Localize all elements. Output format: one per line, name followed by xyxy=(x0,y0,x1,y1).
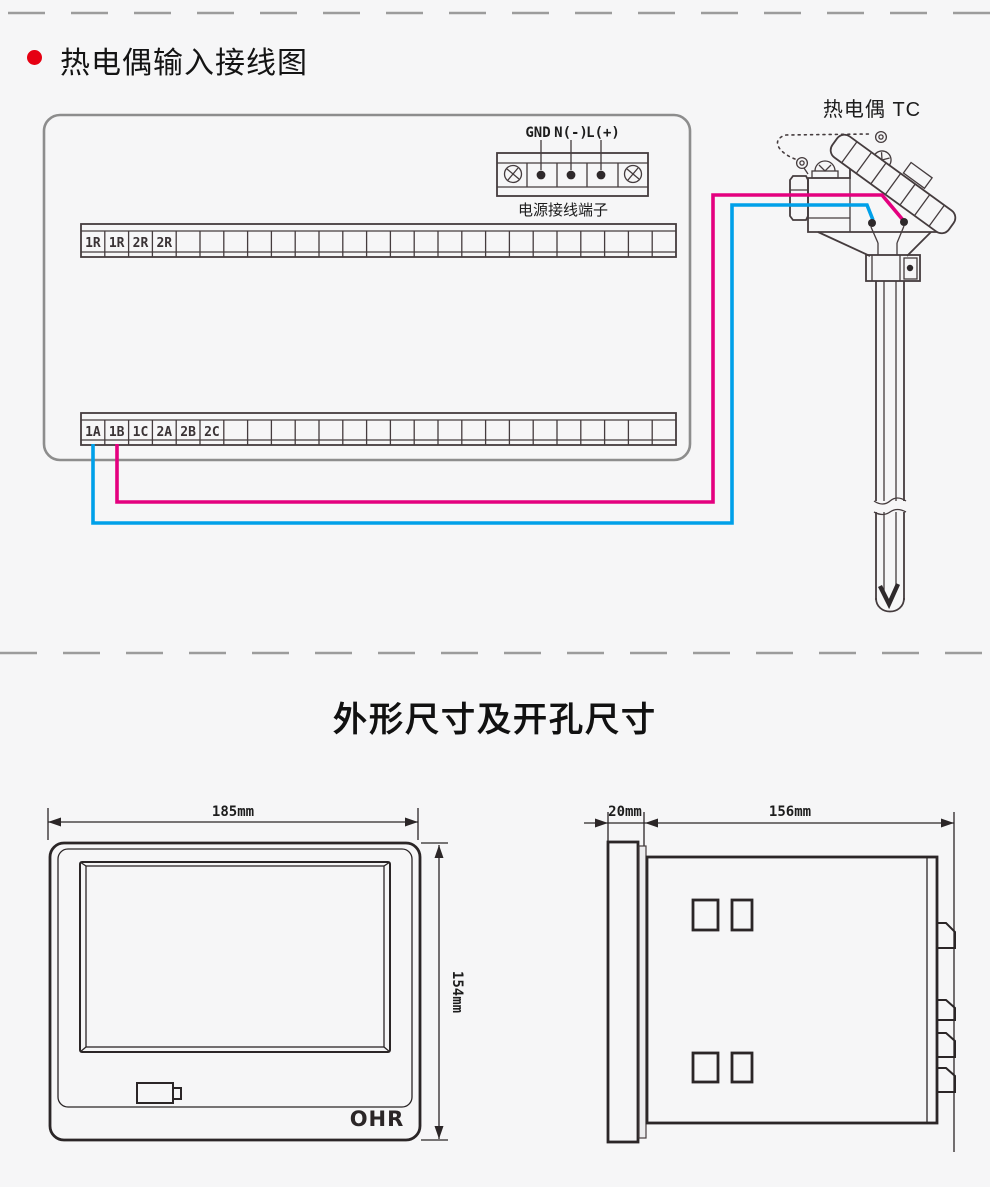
tc-ring-screw-left-icon xyxy=(797,158,808,174)
tc-probe-sheath xyxy=(874,281,906,612)
usb-cover-icon xyxy=(137,1083,181,1103)
terminal-cell-label: 1R xyxy=(85,236,101,251)
side-depth-dim: 20mm xyxy=(608,804,642,820)
tc-hex-fitting xyxy=(790,176,808,220)
side-gasket xyxy=(639,846,646,1138)
power-terminal-caption: 电源接线端子 xyxy=(518,202,608,219)
terminal-cell-label: 2R xyxy=(133,236,149,251)
mount-screw-left-icon xyxy=(505,166,522,183)
terminal-cell-label: 2R xyxy=(156,236,172,251)
section-bullet-icon xyxy=(27,50,42,65)
terminal-strip-lower: 1A1B1C2A2B2C xyxy=(81,413,676,445)
front-view-drawing: 185mm OHR 154mm xyxy=(48,804,465,1140)
diagram-canvas: GND N(-) L(+) 电源接线端子 1R1R2R2R 1A1B1C2A2B… xyxy=(0,0,990,1187)
tc-wing-screw-icon xyxy=(812,161,838,178)
terminal-cell-label: 1B xyxy=(109,425,125,440)
thermocouple-illustration: 热电偶 TC xyxy=(777,98,967,612)
tc-ring-screw-top-icon xyxy=(876,132,887,143)
front-bezel-outline xyxy=(50,843,420,1140)
neutral-label: N(-) xyxy=(554,125,588,141)
gnd-terminal-point xyxy=(537,171,546,180)
manual-page: { "titles": { "section1": "热电偶输入接线图", "s… xyxy=(0,0,990,1187)
line-label: L(+) xyxy=(586,125,620,141)
thermocouple-label: 热电偶 TC xyxy=(823,98,921,121)
side-front-bezel xyxy=(608,842,638,1142)
terminal-cell-label: 1A xyxy=(85,425,101,440)
terminal-cell-label: 1R xyxy=(109,236,125,251)
terminal-cell-label: 2A xyxy=(156,425,172,440)
terminal-cell-label: 2B xyxy=(180,425,196,440)
terminal-cell-label: 1C xyxy=(133,425,149,440)
wiring-diagram: GND N(-) L(+) 电源接线端子 1R1R2R2R 1A1B1C2A2B… xyxy=(44,98,968,612)
terminal-strip-upper: 1R1R2R2R xyxy=(81,224,676,257)
mount-screw-right-icon xyxy=(625,166,642,183)
rear-panel-outline xyxy=(44,115,690,460)
line-terminal-point xyxy=(597,171,606,180)
side-view-drawing: 20mm 156mm xyxy=(584,804,955,1152)
section1-title: 热电偶输入接线图 xyxy=(60,38,308,82)
front-screen xyxy=(80,862,390,1052)
front-height-dim: 154mm xyxy=(449,971,465,1013)
side-vent-slots xyxy=(693,900,752,1082)
section2-title: 外形尺寸及开孔尺寸 xyxy=(0,692,990,741)
power-terminal-block: GND N(-) L(+) 电源接线端子 xyxy=(497,125,648,219)
terminal-cell-label: 2C xyxy=(204,425,220,440)
tc-terminal-post-right xyxy=(900,218,908,226)
neutral-terminal-point xyxy=(567,171,576,180)
front-width-dim: 185mm xyxy=(212,804,254,820)
brand-logo: OHR xyxy=(350,1107,405,1131)
tc-terminal-post-left xyxy=(868,219,876,227)
gnd-label: GND xyxy=(525,125,550,141)
side-case-body xyxy=(647,857,937,1123)
tc-clamp-block xyxy=(866,255,920,281)
side-body-depth-dim: 156mm xyxy=(769,804,811,820)
tc-probe-tip-arrow xyxy=(880,584,898,604)
side-terminal-tabs xyxy=(937,923,955,1092)
wire-negative xyxy=(93,205,873,523)
